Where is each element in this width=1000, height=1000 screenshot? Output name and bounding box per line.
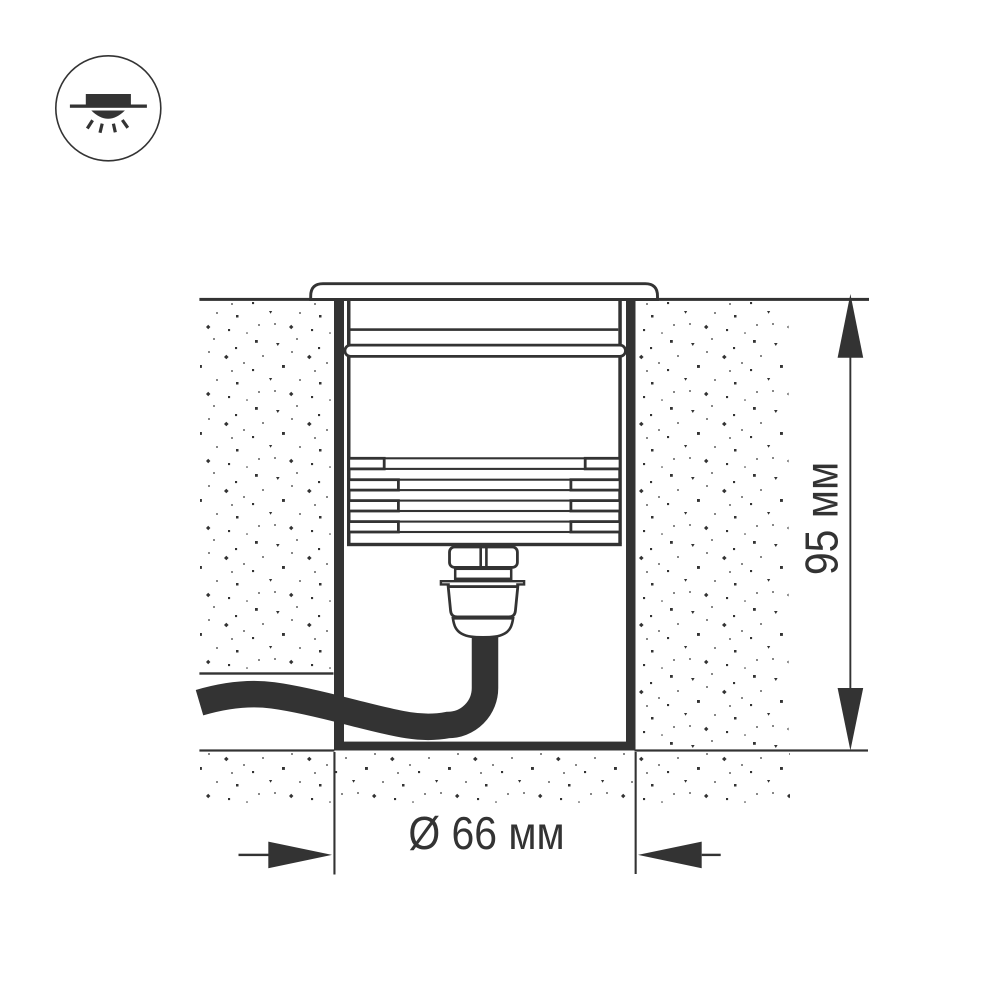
svg-text:Ø 66 мм: Ø 66 мм — [408, 809, 564, 860]
svg-text:95 мм: 95 мм — [797, 462, 848, 575]
